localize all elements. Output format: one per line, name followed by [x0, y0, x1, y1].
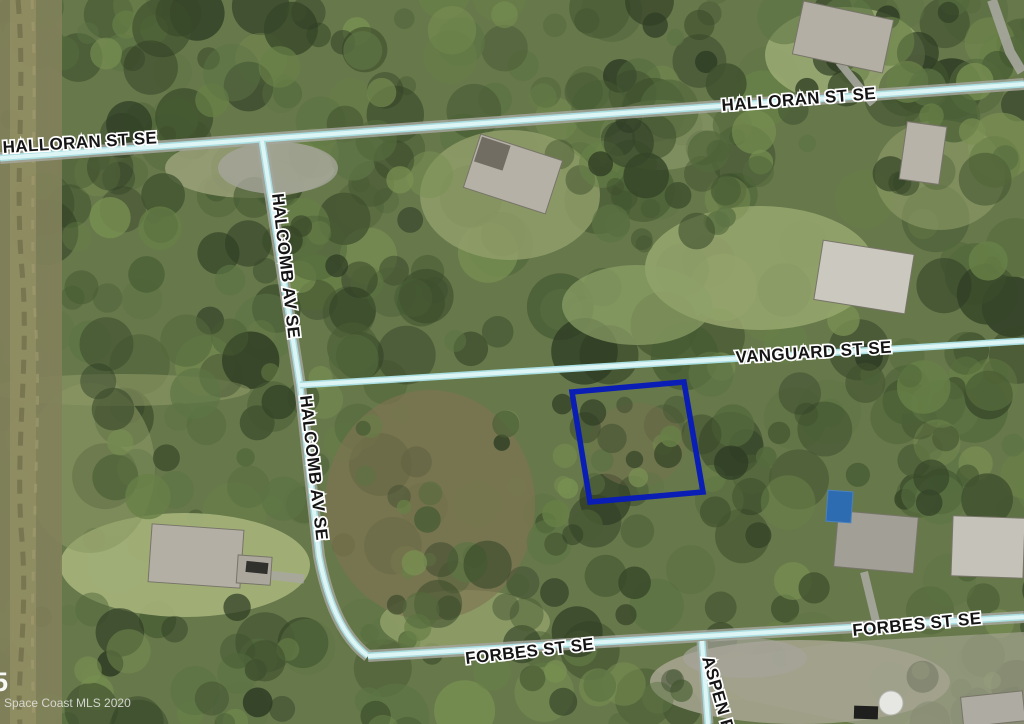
aerial-photo: HALLORAN ST SE HALLORAN ST SE HALCOMB AV… [0, 0, 1024, 724]
dirt-track-strip [0, 0, 62, 724]
car [854, 706, 878, 720]
house-roof [951, 516, 1024, 578]
watermark: Space Coast MLS 2020 [4, 696, 131, 710]
house-roof [899, 121, 947, 184]
water-tank [879, 691, 903, 715]
car [245, 561, 268, 574]
aerial-map-canvas: HALLORAN ST SE HALLORAN ST SE HALCOMB AV… [0, 0, 1024, 724]
house-roof [148, 524, 244, 588]
photo-number-label: 5 [0, 667, 8, 697]
pool [826, 490, 853, 523]
